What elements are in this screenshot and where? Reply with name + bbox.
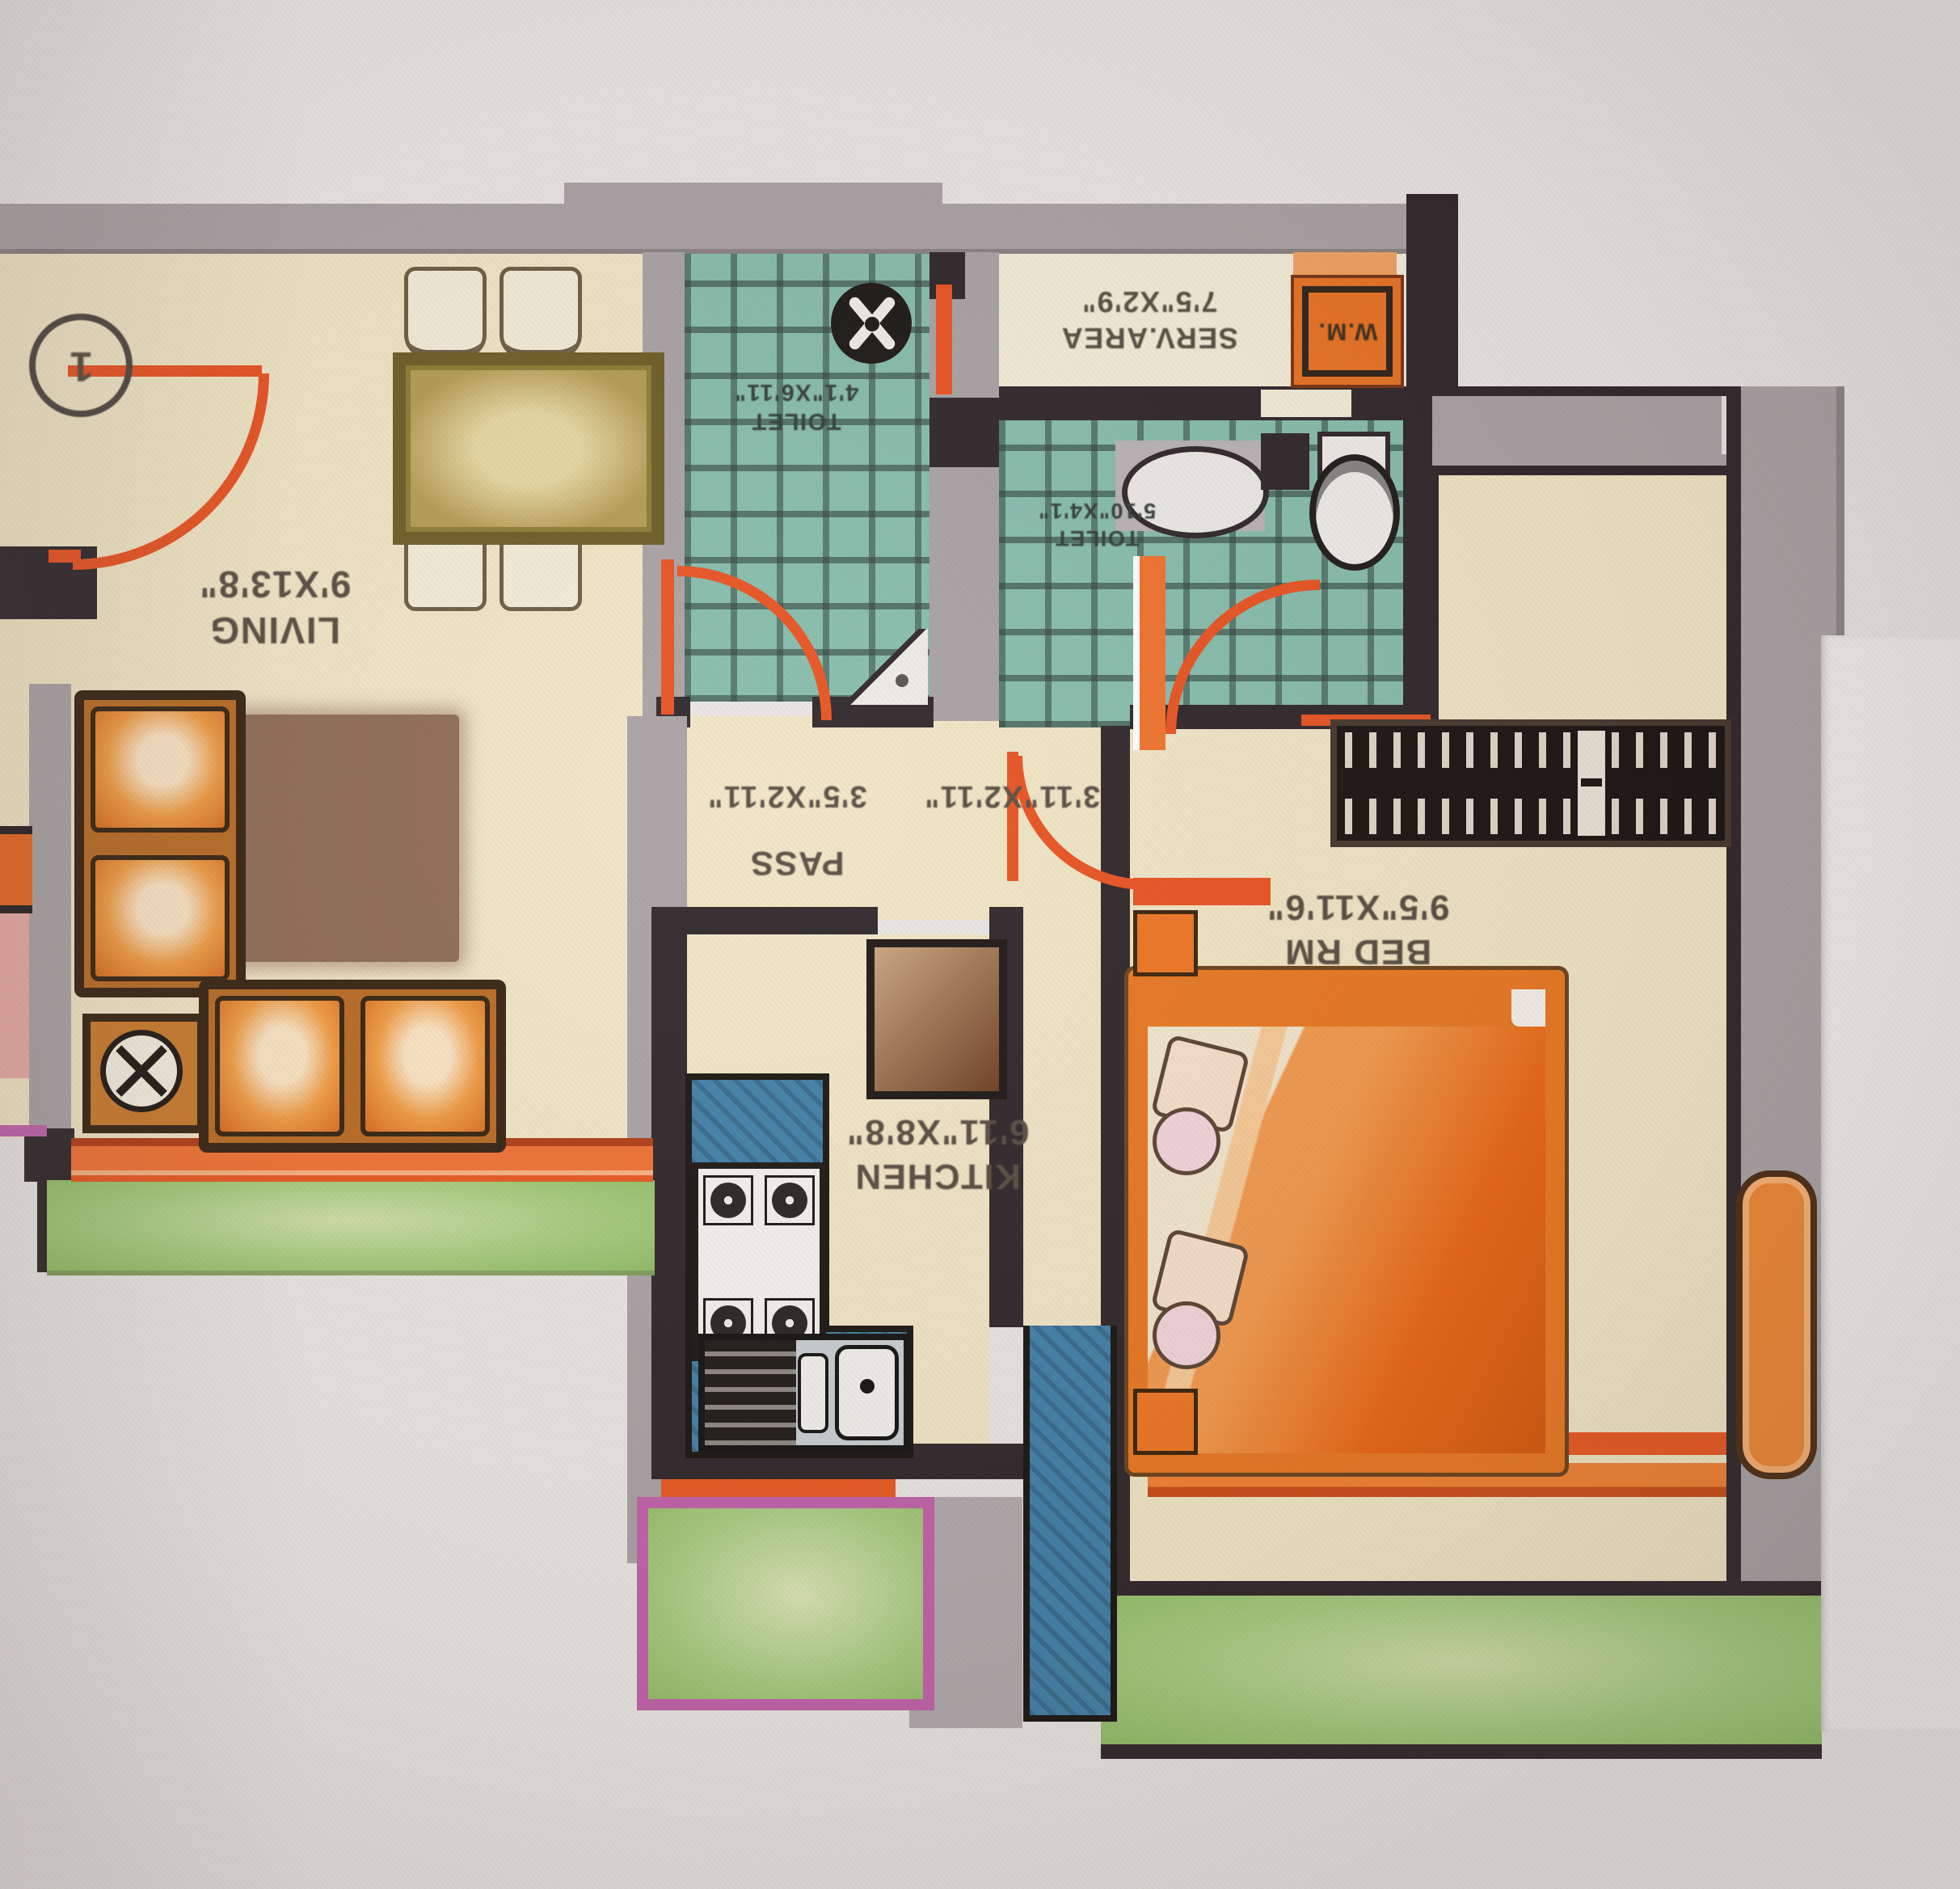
wc-pot — [1309, 454, 1400, 571]
bedroom-label: BED RM 9'5"X11'6" — [1196, 862, 1520, 997]
pass-name-label: PASS — [692, 831, 902, 896]
pass-name: PASS — [749, 842, 844, 885]
sink-unit — [698, 1334, 910, 1452]
living-garden-strip — [47, 1180, 655, 1275]
living-label: LIVING 9'X13'8" — [121, 546, 428, 668]
top-wall-step — [564, 183, 942, 207]
toilet2-name: TOILET — [1055, 524, 1140, 551]
planter-box — [637, 1497, 934, 1710]
dining-table — [393, 352, 664, 545]
toilet1-name: TOILET — [751, 407, 841, 436]
bedroom-size: 9'5"X11'6" — [1267, 885, 1450, 930]
dining-chair — [404, 267, 487, 359]
sink-drain — [860, 1379, 875, 1394]
bedroom-door-frame — [1133, 556, 1165, 750]
fan-symbol-icon — [100, 1030, 183, 1112]
flush-unit — [1261, 433, 1309, 490]
fan-hub — [865, 317, 879, 331]
bedside-table — [1133, 1389, 1198, 1455]
toilet2-size: 5'10"X4'1" — [1038, 496, 1157, 524]
kitchen-window-band — [661, 1479, 896, 1497]
flat-number-marker: 1 — [29, 314, 133, 417]
service-area-name: SERV.AREA — [1060, 320, 1238, 356]
basin-drain — [896, 674, 908, 687]
service-door-gap — [1261, 390, 1351, 417]
adjacent-flat-pink-sliver — [0, 913, 29, 1078]
top-wall — [0, 204, 1455, 254]
sofa-cushion — [91, 855, 230, 981]
toilet2-label: TOILET 5'10"X4'1" — [1004, 475, 1190, 572]
kitchen-top-wall — [651, 907, 878, 934]
toilet1-label: TOILET 4'1"X6'11" — [695, 354, 897, 459]
sink-bowl — [835, 1345, 899, 1440]
pillow — [1153, 1301, 1220, 1369]
dry-area-tiles — [1023, 1326, 1117, 1722]
wardrobe-slats — [1345, 799, 1717, 834]
duct-shaft — [866, 939, 1007, 1099]
exhaust-fan-icon — [831, 283, 912, 364]
wardrobe-slats — [1345, 732, 1717, 768]
washing-machine: W.M. — [1291, 275, 1404, 388]
entry-door-jamb — [48, 550, 81, 563]
side-table — [82, 1014, 205, 1133]
toilet1-door-leaf — [661, 559, 674, 715]
bedroom-name: BED RM — [1284, 930, 1432, 974]
sofa-cushion — [360, 996, 490, 1136]
wardrobe — [1330, 719, 1731, 847]
adjacent-flat-orange-sliver — [0, 826, 32, 913]
service-area-label: SERV.AREA 7'5"X2'9" — [1012, 267, 1287, 373]
top-right-corner-wall — [1406, 194, 1458, 393]
washing-machine-inner: W.M. — [1302, 286, 1393, 377]
living-rug — [223, 715, 459, 962]
wardrobe-divider — [1578, 726, 1605, 841]
bedroom-garden-strip — [1101, 1581, 1822, 1759]
living-size: 9'X13'8" — [199, 561, 352, 608]
living-name: LIVING — [209, 607, 340, 654]
wm-label: W.M. — [1317, 316, 1377, 347]
sofa-cushion — [91, 706, 230, 833]
flat-number: 1 — [69, 339, 93, 392]
bedroom-floor-upper — [1439, 454, 1726, 727]
pass-size-a: 3'11"X2'11" — [924, 776, 1101, 815]
pass-size-b: 3'5"X2'11" — [707, 776, 867, 815]
dining-chair — [499, 267, 582, 359]
sink-divider — [798, 1353, 828, 1433]
pillow — [1153, 1107, 1220, 1175]
drainboard — [705, 1340, 796, 1445]
living-left-wall — [29, 684, 71, 1182]
divider-bar — [1581, 778, 1602, 786]
corner-basin — [842, 629, 928, 705]
service-area-size: 7'5"X2'9" — [1081, 284, 1218, 320]
bedside-table — [1133, 910, 1198, 976]
sofa-two-seat-vertical — [74, 690, 246, 997]
sofa-cushion — [215, 996, 344, 1136]
kitchen-label: KITCHEN 6'11"X8'8" — [776, 1090, 1099, 1219]
toilet1-size: 4'1"X6'11" — [734, 377, 859, 407]
kitchen-size: 6'11"X8'8" — [846, 1110, 1030, 1154]
toilet-divider-block — [929, 398, 999, 467]
pass-sizes-label: 3'11"X2'11" 3'5"X2'11" — [669, 765, 1138, 826]
sofa-two-seat-horizontal — [199, 980, 506, 1153]
kitchen-name: KITCHEN — [854, 1154, 1021, 1199]
kitchen-left-wall — [651, 930, 687, 1479]
mid-column-door — [936, 285, 952, 394]
bench-seat — [1736, 1170, 1817, 1479]
page-edge-strip — [1821, 635, 1960, 1731]
stove-burner — [703, 1175, 753, 1225]
magenta-edge-sliver — [0, 1125, 47, 1136]
